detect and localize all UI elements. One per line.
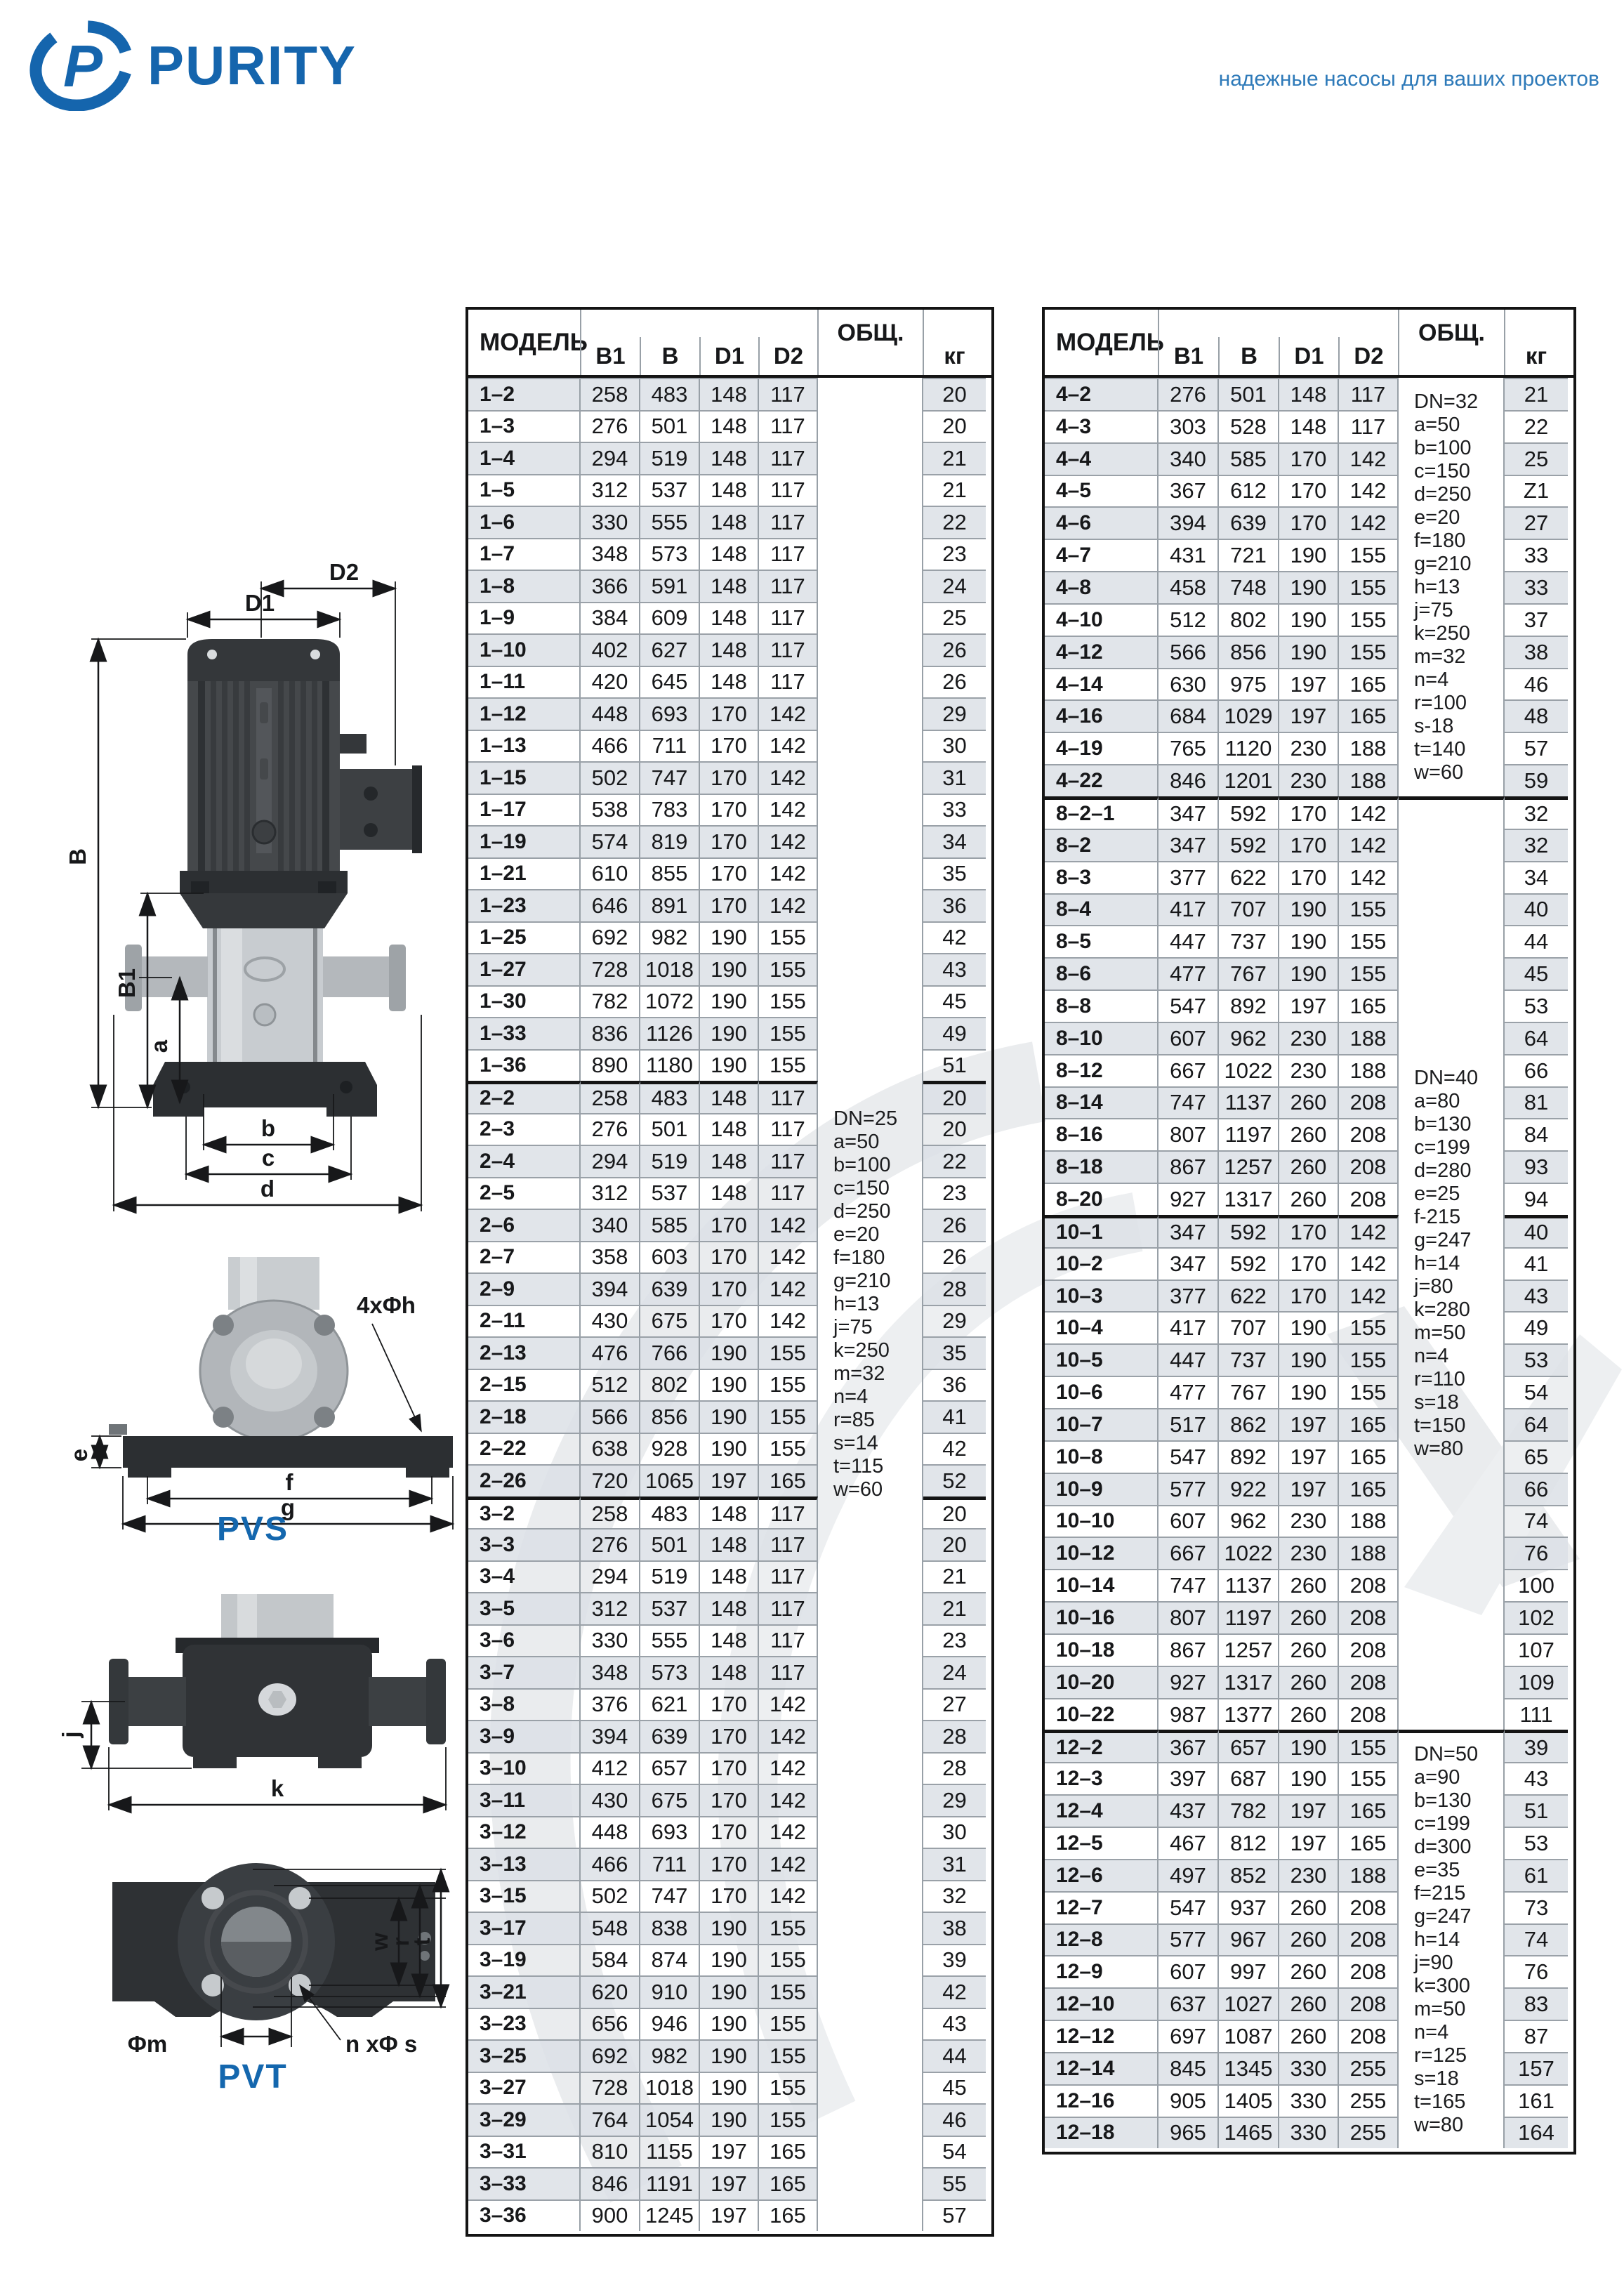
d1-cell: 148 [700, 1496, 759, 1529]
note-line: k=250 [833, 1339, 926, 1362]
d1-cell: 260 [1279, 1183, 1339, 1215]
d1-cell: 170 [700, 1272, 759, 1305]
d2-cell: 142 [759, 1272, 818, 1305]
model-cell: 4–8 [1045, 571, 1158, 603]
model-cell: 3–7 [468, 1656, 581, 1688]
b1-cell: 476 [581, 1336, 640, 1369]
b1-cell: 547 [1158, 1440, 1219, 1473]
model-cell: 3–5 [468, 1592, 581, 1624]
kg-cell: 28 [923, 1720, 986, 1752]
model-cell: 2–6 [468, 1209, 581, 1241]
b-cell: 555 [640, 1624, 700, 1657]
d1-cell: 197 [1279, 1473, 1339, 1505]
dim-label-j: j [58, 1731, 84, 1738]
note-line: r=100 [1414, 692, 1507, 715]
kg-cell: 29 [923, 697, 986, 730]
b-cell: 748 [1219, 571, 1279, 603]
model-cell: 4–14 [1045, 668, 1158, 700]
b-cell: 657 [1219, 1730, 1279, 1762]
model-cell: 1–10 [468, 633, 581, 666]
b-cell: 962 [1219, 1505, 1279, 1537]
d2-cell: 117 [759, 1560, 818, 1593]
d1-cell: 190 [700, 2039, 759, 2072]
b-cell: 1054 [640, 2103, 700, 2136]
d2-cell: 155 [1339, 1762, 1399, 1794]
b-cell: 657 [640, 1752, 700, 1784]
d1-cell: 170 [700, 889, 759, 921]
b1-cell: 697 [1158, 2020, 1219, 2052]
d1-cell: 190 [700, 953, 759, 985]
model-cell: 2–22 [468, 1433, 581, 1465]
kg-cell: 43 [923, 953, 986, 985]
kg-cell: 23 [923, 1624, 986, 1657]
d2-cell: 117 [759, 1145, 818, 1177]
b-cell: 501 [1219, 378, 1279, 410]
b1-cell: 466 [581, 1848, 640, 1880]
d1-cell: 170 [1279, 1247, 1339, 1280]
d1-cell: 230 [1279, 764, 1339, 796]
d1-cell: 260 [1279, 1698, 1339, 1730]
d2-cell: 142 [1339, 1247, 1399, 1280]
kg-cell: 21 [923, 442, 986, 474]
b1-cell: 610 [581, 857, 640, 890]
kg-cell: 53 [1505, 1827, 1568, 1859]
d1-cell: 148 [700, 1560, 759, 1593]
b1-cell: 437 [1158, 1794, 1219, 1827]
kg-cell: 46 [1505, 668, 1568, 700]
d2-cell: 142 [759, 857, 818, 890]
d2-cell: 155 [759, 1433, 818, 1465]
kg-cell: 83 [1505, 1987, 1568, 2020]
model-cell: 3–10 [468, 1752, 581, 1784]
kg-cell: 23 [923, 1177, 986, 1209]
common-dimensions-notes-dn32: DN=32a=50b=100c=150d=250e=20f=180g=210h=… [1401, 378, 1507, 796]
b1-cell: 577 [1158, 1473, 1219, 1505]
note-line: DN=25 [833, 1107, 926, 1131]
b1-cell: 846 [1158, 764, 1219, 796]
d2-cell: 188 [1339, 732, 1399, 764]
model-cell: 8–6 [1045, 957, 1158, 989]
kg-cell: 35 [923, 857, 986, 890]
kg-cell: 32 [923, 1880, 986, 1912]
kg-cell: 28 [923, 1272, 986, 1305]
b1-cell: 845 [1158, 2052, 1219, 2084]
d1-cell: 190 [1279, 957, 1339, 989]
d2-cell: 117 [759, 602, 818, 634]
b-cell: 737 [1219, 925, 1279, 957]
b-cell: 693 [640, 697, 700, 730]
d1-cell: 190 [700, 1912, 759, 1944]
d1-cell: 148 [1279, 378, 1339, 410]
b1-cell: 466 [581, 730, 640, 762]
b1-cell: 417 [1158, 1311, 1219, 1343]
b1-cell: 890 [581, 1049, 640, 1081]
b-cell: 573 [640, 1656, 700, 1688]
model-cell: 10–9 [1045, 1473, 1158, 1505]
b1-cell: 417 [1158, 893, 1219, 926]
model-cell: 12–7 [1045, 1891, 1158, 1923]
d2-cell: 165 [759, 2136, 818, 2168]
model-cell: 3–25 [468, 2039, 581, 2072]
d1-cell: 190 [1279, 539, 1339, 571]
kg-cell: 33 [923, 794, 986, 826]
b-cell: 862 [1219, 1408, 1279, 1440]
b-cell: 967 [1219, 1923, 1279, 1956]
model-cell: 12–9 [1045, 1955, 1158, 1987]
b1-cell: 348 [581, 538, 640, 570]
d1-cell: 260 [1279, 1569, 1339, 1601]
d1-cell: 170 [700, 761, 759, 794]
model-cell: 8–20 [1045, 1183, 1158, 1215]
d1-cell: 230 [1279, 1022, 1339, 1054]
model-cell: 10–7 [1045, 1408, 1158, 1440]
d1-cell: 170 [700, 1848, 759, 1880]
kg-cell: 42 [923, 1975, 986, 2008]
d2-cell: 155 [759, 985, 818, 1018]
d1-cell: 148 [700, 1592, 759, 1624]
note-line: h=13 [1414, 576, 1507, 599]
note-line: d=300 [1414, 1836, 1507, 1859]
b1-cell: 720 [581, 1464, 640, 1496]
b-cell: 1126 [640, 1017, 700, 1049]
dim-label-k: k [271, 1775, 284, 1801]
dim-label-f: f [286, 1469, 294, 1495]
b-cell: 1120 [1219, 732, 1279, 764]
b-cell: 874 [640, 1944, 700, 1976]
d1-cell: 230 [1279, 1859, 1339, 1891]
note-line: b=100 [833, 1154, 926, 1177]
b1-cell: 728 [581, 953, 640, 985]
b-cell: 519 [640, 442, 700, 474]
dim-label-a: a [146, 1039, 172, 1053]
b1-cell: 447 [1158, 1343, 1219, 1376]
d2-cell: 208 [1339, 1666, 1399, 1698]
d1-cell: 260 [1279, 2020, 1339, 2052]
kg-cell: 55 [923, 2167, 986, 2199]
model-cell: 2–2 [468, 1081, 581, 1113]
b-cell: 693 [640, 1816, 700, 1848]
b1-cell: 312 [581, 474, 640, 506]
model-cell: 8–2–1 [1045, 796, 1158, 829]
model-cell: 2–26 [468, 1464, 581, 1496]
svg-text:P: P [63, 33, 103, 99]
model-cell: 1–30 [468, 985, 581, 1018]
model-cell: 2–9 [468, 1272, 581, 1305]
model-cell: 10–10 [1045, 1505, 1158, 1537]
note-line: c=150 [833, 1177, 926, 1200]
b1-cell: 377 [1158, 861, 1219, 893]
note-line: DN=50 [1414, 1743, 1507, 1766]
b1-cell: 987 [1158, 1698, 1219, 1730]
brand-logo-text: PURITY [147, 34, 357, 98]
b1-cell: 367 [1158, 1730, 1219, 1762]
note-line: a=90 [1414, 1766, 1507, 1789]
b1-cell: 620 [581, 1975, 640, 2008]
b-cell: 1377 [1219, 1698, 1279, 1730]
d1-cell: 190 [700, 2072, 759, 2104]
model-cell: 2–7 [468, 1241, 581, 1273]
pvt-tee-view-drawing: j k [42, 1594, 463, 1819]
column-header-common: ОБЩ. [818, 320, 923, 347]
b-cell: 767 [1219, 1376, 1279, 1408]
note-line: d=280 [1414, 1159, 1507, 1183]
b-cell: 483 [640, 1496, 700, 1529]
model-cell: 3–17 [468, 1912, 581, 1944]
b1-cell: 412 [581, 1752, 640, 1784]
b1-cell: 502 [581, 1880, 640, 1912]
model-cell: 2–4 [468, 1145, 581, 1177]
b1-cell: 684 [1158, 699, 1219, 732]
model-cell: 4–22 [1045, 764, 1158, 796]
d1-cell: 148 [700, 1656, 759, 1688]
d2-cell: 142 [1339, 1280, 1399, 1312]
b-cell: 555 [640, 506, 700, 538]
b-cell: 622 [1219, 861, 1279, 893]
d2-cell: 142 [1339, 1215, 1399, 1247]
d2-cell: 155 [759, 2103, 818, 2136]
d2-cell: 142 [759, 761, 818, 794]
model-cell: 8–5 [1045, 925, 1158, 957]
b-cell: 910 [640, 1975, 700, 2008]
model-cell: 12–3 [1045, 1762, 1158, 1794]
d1-cell: 170 [700, 825, 759, 857]
column-header-b: B [1219, 343, 1279, 369]
model-cell: 12–14 [1045, 2052, 1158, 2084]
b1-cell: 377 [1158, 1280, 1219, 1312]
model-cell: 1–15 [468, 761, 581, 794]
kg-cell: 107 [1505, 1633, 1568, 1666]
d2-cell: 142 [759, 1305, 818, 1337]
model-cell: 3–8 [468, 1688, 581, 1721]
b1-cell: 692 [581, 921, 640, 954]
b-cell: 1245 [640, 2199, 700, 2232]
b-cell: 1065 [640, 1464, 700, 1496]
dim-label-d: d [260, 1176, 275, 1202]
b1-cell: 867 [1158, 1633, 1219, 1666]
b-cell: 892 [1219, 1440, 1279, 1473]
kg-cell: 64 [1505, 1022, 1568, 1054]
d2-cell: 142 [1339, 442, 1399, 475]
d2-cell: 142 [1339, 475, 1399, 507]
b-cell: 937 [1219, 1891, 1279, 1923]
brand-logo-icon: P [27, 20, 139, 111]
b1-cell: 548 [581, 1912, 640, 1944]
column-header-b1: B1 [1158, 343, 1219, 369]
note-line: g=210 [1414, 553, 1507, 576]
d2-cell: 165 [759, 2167, 818, 2199]
d2-cell: 117 [759, 1113, 818, 1145]
b-cell: 1029 [1219, 699, 1279, 732]
d1-cell: 148 [700, 1177, 759, 1209]
d1-cell: 260 [1279, 1891, 1339, 1923]
d1-cell: 148 [700, 1145, 759, 1177]
note-line: e=25 [1414, 1183, 1507, 1206]
note-line: r=85 [833, 1409, 926, 1432]
d2-cell: 155 [759, 1336, 818, 1369]
model-cell: 4–12 [1045, 636, 1158, 668]
kg-cell: 84 [1505, 1118, 1568, 1150]
model-cell: 1–11 [468, 666, 581, 698]
note-line: h=14 [1414, 1928, 1507, 1952]
kg-cell: 29 [923, 1305, 986, 1337]
b1-cell: 394 [1158, 506, 1219, 539]
kg-cell: 64 [1505, 1408, 1568, 1440]
b1-cell: 430 [581, 1305, 640, 1337]
d2-cell: 208 [1339, 1955, 1399, 1987]
b-cell: 1317 [1219, 1666, 1279, 1698]
d2-cell: 117 [759, 1592, 818, 1624]
model-cell: 8–12 [1045, 1054, 1158, 1086]
b1-cell: 458 [1158, 571, 1219, 603]
kg-cell: 73 [1505, 1891, 1568, 1923]
model-cell: 10–14 [1045, 1569, 1158, 1601]
model-cell: 3–6 [468, 1624, 581, 1657]
kg-cell: 21 [923, 1592, 986, 1624]
b-cell: 812 [1219, 1827, 1279, 1859]
model-cell: 1–7 [468, 538, 581, 570]
b-cell: 819 [640, 825, 700, 857]
model-cell: 4–19 [1045, 732, 1158, 764]
note-line: t=140 [1414, 738, 1507, 761]
kg-cell: 32 [1505, 796, 1568, 829]
kg-cell: 44 [923, 2039, 986, 2072]
d2-cell: 188 [1339, 1537, 1399, 1569]
d1-cell: 170 [1279, 506, 1339, 539]
dim-label-b1-height: B1 [114, 968, 140, 998]
b-cell: 982 [640, 2039, 700, 2072]
d1-cell: 230 [1279, 1537, 1339, 1569]
kg-cell: 52 [923, 1464, 986, 1496]
model-cell: 8–4 [1045, 893, 1158, 926]
b-cell: 747 [640, 761, 700, 794]
model-cell: 8–18 [1045, 1150, 1158, 1183]
dim-label-c: c [262, 1145, 275, 1171]
dim-label-t: t [409, 1938, 435, 1946]
d1-cell: 190 [700, 1049, 759, 1081]
dimension-table-left: МОДЕЛЬ B1 B D1 D2 ОБЩ. кг 1–2 258 483 14… [466, 307, 994, 2237]
d2-cell: 208 [1339, 1698, 1399, 1730]
column-header-common: ОБЩ. [1399, 320, 1505, 347]
b-cell: 1257 [1219, 1633, 1279, 1666]
model-cell: 10–18 [1045, 1633, 1158, 1666]
b-cell: 838 [640, 1912, 700, 1944]
b-cell: 537 [640, 474, 700, 506]
b-cell: 1022 [1219, 1054, 1279, 1086]
b1-cell: 366 [581, 570, 640, 602]
note-line: n=4 [1414, 1345, 1507, 1368]
kg-cell: 44 [1505, 925, 1568, 957]
kg-cell: 76 [1505, 1955, 1568, 1987]
b1-cell: 867 [1158, 1150, 1219, 1183]
kg-cell: 36 [923, 889, 986, 921]
kg-cell: 43 [923, 2008, 986, 2040]
note-line: t=115 [833, 1455, 926, 1478]
dim-label-b-height: B [65, 848, 91, 865]
kg-cell: 74 [1505, 1505, 1568, 1537]
d1-cell: 170 [1279, 1215, 1339, 1247]
model-cell: 3–31 [468, 2136, 581, 2168]
model-cell: 12–5 [1045, 1827, 1158, 1859]
b1-cell: 258 [581, 1496, 640, 1529]
d1-cell: 190 [1279, 636, 1339, 668]
d1-cell: 148 [700, 1113, 759, 1145]
model-cell: 3–15 [468, 1880, 581, 1912]
d1-cell: 170 [700, 1209, 759, 1241]
d2-cell: 155 [1339, 571, 1399, 603]
b-cell: 592 [1219, 1247, 1279, 1280]
d2-cell: 165 [1339, 989, 1399, 1022]
kg-cell: 87 [1505, 2020, 1568, 2052]
model-cell: 1–17 [468, 794, 581, 826]
d2-cell: 117 [759, 378, 818, 410]
d2-cell: 117 [759, 442, 818, 474]
kg-cell: 45 [923, 2072, 986, 2104]
model-cell: 3–36 [468, 2199, 581, 2232]
b1-cell: 965 [1158, 2117, 1219, 2149]
b-cell: 1465 [1219, 2117, 1279, 2149]
d1-cell: 190 [700, 2008, 759, 2040]
pump-flange-view-drawing: e 4xΦh f g [42, 1257, 463, 1534]
d1-cell: 170 [700, 1241, 759, 1273]
b-cell: 802 [1219, 603, 1279, 636]
b1-cell: 276 [1158, 378, 1219, 410]
b1-cell: 502 [581, 761, 640, 794]
d2-cell: 155 [1339, 1376, 1399, 1408]
d2-cell: 117 [1339, 410, 1399, 442]
kg-cell: 23 [923, 538, 986, 570]
d1-cell: 197 [1279, 668, 1339, 700]
note-line: w=60 [1414, 761, 1507, 784]
d1-cell: 170 [700, 1752, 759, 1784]
b1-cell: 584 [581, 1944, 640, 1976]
note-line: b=130 [1414, 1789, 1507, 1813]
d1-cell: 260 [1279, 1955, 1339, 1987]
model-cell: 12–6 [1045, 1859, 1158, 1891]
b1-cell: 258 [581, 378, 640, 410]
b1-cell: 577 [1158, 1923, 1219, 1956]
model-cell: 3–4 [468, 1560, 581, 1593]
d1-cell: 190 [1279, 1311, 1339, 1343]
d2-cell: 155 [759, 1400, 818, 1433]
kg-cell: 27 [923, 1688, 986, 1721]
d2-cell: 155 [1339, 957, 1399, 989]
model-cell: 1–4 [468, 442, 581, 474]
b-cell: 855 [640, 857, 700, 890]
model-cell: 3–19 [468, 1944, 581, 1976]
d2-cell: 255 [1339, 2052, 1399, 2084]
d2-cell: 117 [759, 506, 818, 538]
kg-cell: 24 [923, 1656, 986, 1688]
model-cell: 8–2 [1045, 829, 1158, 861]
model-cell: 1–12 [468, 697, 581, 730]
d2-cell: 155 [1339, 636, 1399, 668]
b-cell: 537 [640, 1177, 700, 1209]
b-cell: 982 [640, 921, 700, 954]
b-cell: 1137 [1219, 1569, 1279, 1601]
b1-cell: 294 [581, 442, 640, 474]
b1-cell: 782 [581, 985, 640, 1018]
note-line: d=250 [833, 1200, 926, 1223]
d2-cell: 142 [759, 1720, 818, 1752]
d1-cell: 148 [700, 442, 759, 474]
d2-cell: 208 [1339, 1891, 1399, 1923]
b-cell: 782 [1219, 1794, 1279, 1827]
kg-cell: 26 [923, 1241, 986, 1273]
b1-cell: 547 [1158, 1891, 1219, 1923]
note-line: h=13 [833, 1293, 926, 1316]
d1-cell: 197 [700, 2199, 759, 2232]
kg-cell: 31 [923, 1848, 986, 1880]
